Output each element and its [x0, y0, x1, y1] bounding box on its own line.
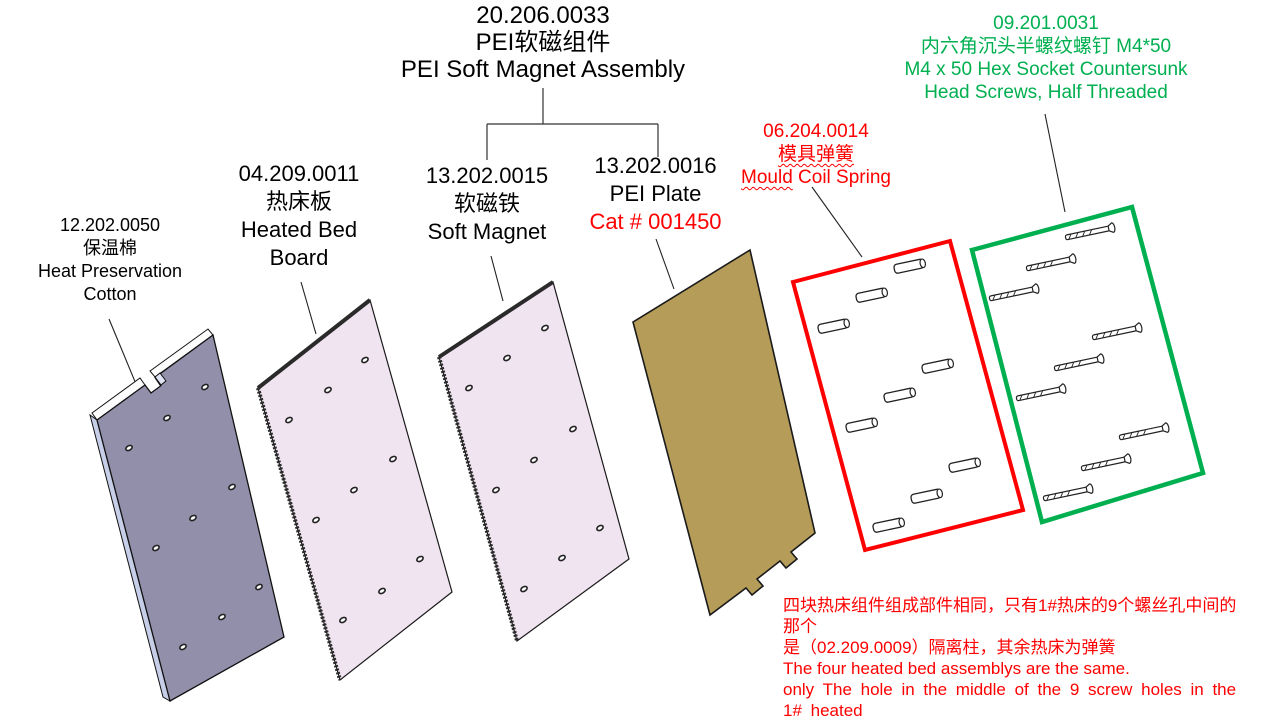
- screws-label: 09.201.0031 内六角沉头半螺纹螺钉 M4*50 M4 x 50 Hex…: [896, 12, 1196, 104]
- spring-part-number: 06.204.0014: [706, 120, 926, 143]
- pei-plate-cat-number: Cat # 001450: [553, 208, 758, 236]
- note-line-en-1: The four heated bed assemblys are the sa…: [783, 658, 1253, 679]
- coil-spring: [872, 517, 905, 532]
- assembly-name-cn: PEI软磁组件: [393, 29, 693, 56]
- assembly-label: 20.206.0033 PEI软磁组件 PEI Soft Magnet Asse…: [393, 2, 693, 83]
- coil-spring: [855, 287, 888, 302]
- heated-bed-name-en-line1: Heated Bed: [199, 216, 399, 244]
- coil-spring: [910, 488, 943, 503]
- cotton-part-number: 12.202.0050: [10, 214, 210, 237]
- coil-spring: [845, 417, 878, 432]
- assembly-part-number: 20.206.0033: [393, 2, 693, 29]
- cotton-label: 12.202.0050 保温棉 Heat Preservation Cotton: [10, 214, 210, 306]
- cotton-name-en-line1: Heat Preservation: [10, 260, 210, 283]
- coil-spring: [921, 358, 954, 373]
- springs: [817, 258, 981, 532]
- screws-name-en-line1: M4 x 50 Hex Socket Countersunk: [896, 58, 1196, 81]
- leader-screws: [1045, 114, 1065, 212]
- hex-screw: [989, 283, 1040, 303]
- heated-bed-part-number: 04.209.0011: [199, 160, 399, 188]
- spring-box: [793, 241, 1023, 550]
- coil-spring: [817, 318, 850, 333]
- leader-spring: [812, 187, 862, 257]
- heated-bed-label: 04.209.0011 热床板 Heated Bed Board: [199, 160, 399, 272]
- cotton-name-en-line2: Cotton: [10, 283, 210, 306]
- hex-screw: [1016, 383, 1067, 403]
- note-line-en-2: only The hole in the middle of the 9 scr…: [783, 679, 1253, 721]
- pei-plate-shape: [633, 250, 815, 615]
- coil-spring: [893, 258, 926, 273]
- coil-spring: [883, 387, 916, 402]
- hex-screw: [1092, 322, 1143, 342]
- hex-screw: [1065, 222, 1116, 242]
- screw-box: [972, 207, 1203, 522]
- hex-screw: [1043, 483, 1094, 503]
- screws: [989, 222, 1170, 503]
- soft-magnet-plate: [439, 282, 629, 641]
- hex-screw: [1081, 453, 1132, 473]
- spring-label: 06.204.0014 模具弹簧 Mould Coil Spring: [706, 120, 926, 189]
- cotton-name-cn: 保温棉: [10, 237, 210, 260]
- heat-preservation-cotton-plate: [90, 329, 284, 701]
- hex-screw: [1054, 353, 1105, 373]
- screws-name-cn: 内六角沉头半螺纹螺钉 M4*50: [896, 35, 1196, 58]
- assembly-note: 四块热床组件组成部件相同，只有1#热床的9个螺丝孔中间的那个 是（02.209.…: [783, 595, 1253, 722]
- heated-bed-name-en-line2: Board: [199, 244, 399, 272]
- coil-spring: [948, 457, 981, 472]
- screws-name-en-line2: Head Screws, Half Threaded: [896, 81, 1196, 104]
- assembly-bracket: [487, 88, 658, 160]
- leader-heated-bed: [301, 282, 316, 334]
- leader-cotton: [109, 319, 136, 384]
- spring-name-en: Mould Coil Spring: [706, 166, 926, 189]
- exploded-assembly-diagram: 20.206.0033 PEI软磁组件 PEI Soft Magnet Asse…: [0, 0, 1277, 722]
- note-line-cn-1: 四块热床组件组成部件相同，只有1#热床的9个螺丝孔中间的那个: [783, 595, 1253, 637]
- heated-bed-name-cn: 热床板: [199, 188, 399, 216]
- assembly-name-en: PEI Soft Magnet Assembly: [393, 56, 693, 83]
- spring-name-cn: 模具弹簧: [706, 143, 926, 166]
- leader-soft-magnet: [491, 256, 503, 301]
- hex-screw: [1119, 422, 1170, 442]
- note-line-cn-2: 是（02.209.0009）隔离柱，其余热床为弹簧: [783, 637, 1253, 658]
- hex-screw: [1026, 253, 1077, 273]
- leader-pei-plate: [656, 239, 674, 289]
- screws-part-number: 09.201.0031: [896, 12, 1196, 35]
- heated-bed-board-plate: [258, 300, 452, 680]
